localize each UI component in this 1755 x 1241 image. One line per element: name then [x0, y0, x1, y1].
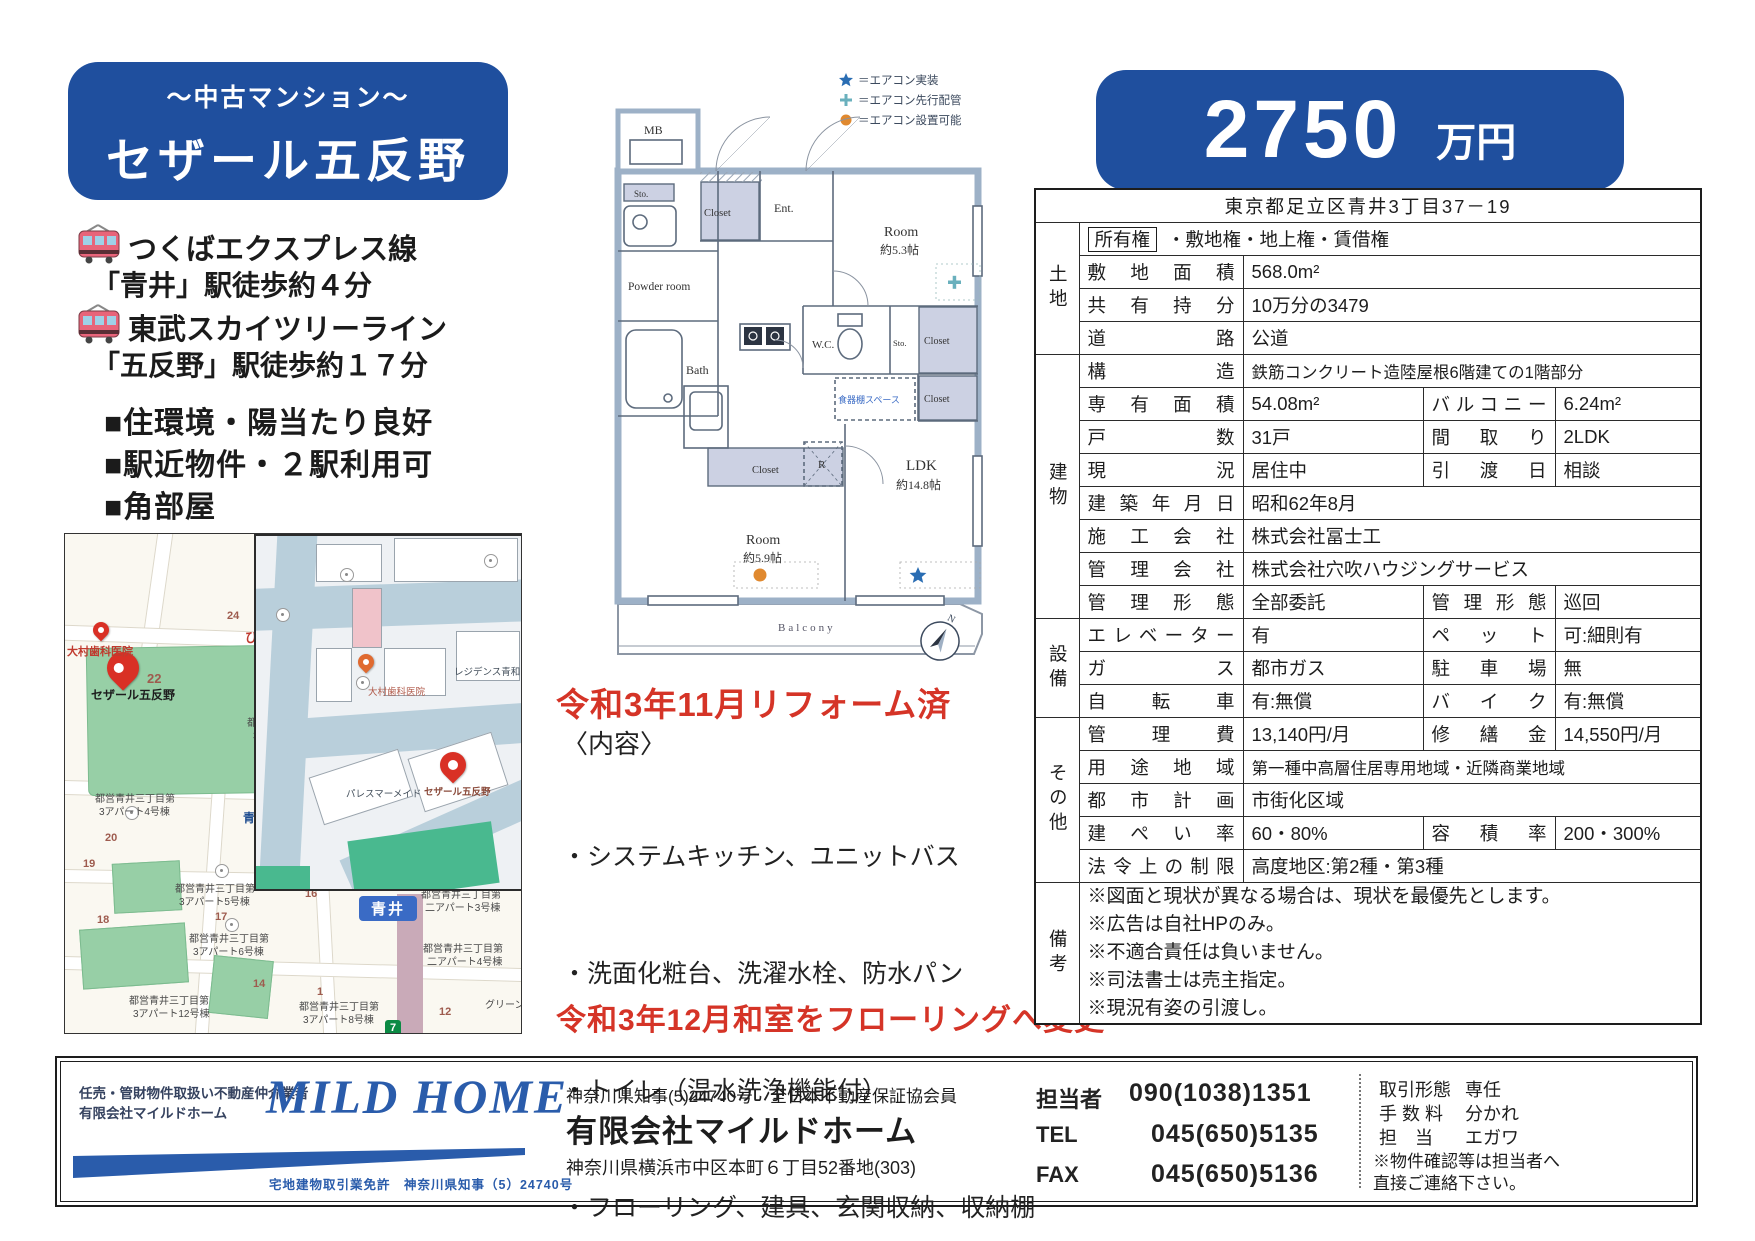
map-label: 22 [147, 672, 161, 686]
label-wc: W.C. [812, 339, 834, 351]
row-label: バイク [1423, 685, 1555, 718]
row-label: 引渡日 [1423, 454, 1555, 487]
map-label: 3アパート6号棟 [193, 947, 264, 958]
contact-person-phone: 090(1038)1351 [1129, 1079, 1312, 1108]
feature-3: ■角部屋 [104, 482, 216, 526]
row-value: 可:細則有 [1555, 619, 1701, 652]
map-label: 大村歯科医院 [67, 646, 133, 658]
label-entrance: Ent. [774, 201, 794, 215]
row-label: 構造 [1079, 355, 1243, 388]
note-line: ※図面と現状が異なる場合は、現状を最優先とします。 [1088, 883, 1693, 911]
footer: 任売・管財物件取扱い不動産仲介業者 有限会社マイルドホーム MILD HOME … [55, 1056, 1698, 1207]
map-label: 24 [227, 610, 239, 622]
deal-key: 取引形態 [1379, 1076, 1465, 1102]
map-label: 都営青井三丁目第 [189, 934, 269, 945]
section-other: その他 [1035, 718, 1079, 883]
row-label: 管理形態 [1423, 586, 1555, 619]
map-building [394, 538, 518, 582]
label-storage2: Sto. [893, 338, 906, 348]
row-label: 共有持分 [1079, 289, 1243, 322]
property-address: 東京都足立区青井3丁目37－19 [1035, 189, 1701, 223]
price-box: 2750 万円 [1096, 70, 1624, 190]
note-line: ※広告は自社HPのみ。 [1088, 911, 1693, 939]
map-label: 3アパート8号棟 [303, 1015, 374, 1026]
fax-number: 045(650)5136 [1151, 1160, 1319, 1189]
seven-eleven-icon: 7 [385, 1020, 401, 1034]
row-label: 専有面積 [1079, 388, 1243, 421]
map-building [316, 648, 352, 702]
label-cupboard-space: 食器棚スペース [838, 394, 900, 405]
access-walk-1: 「青井」駅徒歩約４分 [92, 264, 372, 304]
row-value: 2LDK [1555, 421, 1701, 454]
land-rights: 所有権・敷地権・地上権・賃借権 [1079, 223, 1701, 256]
row-value: 相談 [1555, 454, 1701, 487]
row-label: 建築年月日 [1079, 487, 1243, 520]
map-park [254, 866, 310, 891]
map-park [79, 922, 189, 989]
row-label: 現況 [1079, 454, 1243, 487]
section-building: 建物 [1035, 355, 1079, 619]
row-label: 戸数 [1079, 421, 1243, 454]
tel-label: TEL [1036, 1122, 1078, 1148]
row-value: 568.0m² [1243, 256, 1701, 289]
map-label: 1 [317, 986, 323, 998]
row-value: 有 [1243, 619, 1423, 652]
map-building-pink [352, 588, 382, 648]
map-label: 14 [253, 978, 265, 990]
contact-note-2: 直接ご連絡下さい。 [1373, 1172, 1526, 1195]
row-label: エレベーター [1079, 619, 1243, 652]
row-label: 間取り [1423, 421, 1555, 454]
label-balcony: Balcony [778, 622, 836, 634]
renovation-note: 令和3年12月和室をフローリングへ変更 [556, 995, 1105, 1039]
map-label: 17 [215, 911, 227, 923]
row-label: 敷地面積 [1079, 256, 1243, 289]
deal-key: 担 当 [1379, 1124, 1465, 1150]
map-label: 19 [83, 858, 95, 870]
map-label-property: セザール五反野 [91, 689, 175, 702]
row-label: 管理形態 [1079, 586, 1243, 619]
label-closet-k: Closet [924, 394, 950, 405]
row-value: 10万分の3479 [1243, 289, 1701, 322]
map-dot-marker [484, 554, 498, 568]
access-line-1: つくばエクスプレス線 [128, 226, 417, 268]
company-address: 神奈川県横浜市中区本町６丁目52番地(303) [566, 1154, 916, 1180]
company-logo: MILD HOME [266, 1074, 568, 1122]
map-label: 3アパート4号棟 [99, 807, 170, 818]
map-label: 20 [105, 832, 117, 844]
row-label: 建ぺい率 [1079, 817, 1243, 850]
note-line: ※司法書士は売主指定。 [1088, 967, 1693, 995]
agent-row: 担 当エガワ [1379, 1124, 1519, 1150]
row-label: 法令上の制限 [1079, 850, 1243, 883]
label-room2-size: 約5.9帖 [743, 550, 782, 565]
label-fridge: R [818, 459, 826, 471]
aircon-legend: ＝エアコン実装 ＝エアコン先行配管 ＝エアコン設置可能 [839, 73, 962, 127]
access-walk-2: 「五反野」駅徒歩約１７分 [92, 344, 428, 384]
deal-key: 手 数 料 [1379, 1100, 1465, 1126]
legend-label: ＝エアコン先行配管 [858, 93, 962, 107]
label-ldk-size: 約14.8帖 [896, 477, 941, 492]
section-notes: 備考 [1035, 883, 1079, 1025]
price-unit: 万円 [1436, 92, 1516, 168]
fax-label: FAX [1036, 1162, 1079, 1188]
map-station-aoi: 青井 [359, 896, 417, 921]
contact-note-1: ※物件確認等は担当者へ [1373, 1150, 1560, 1173]
company-name: 有限会社マイルドホーム [566, 1106, 917, 1151]
map-park [347, 821, 499, 891]
cross-icon [840, 94, 852, 106]
deal-type-row: 取引形態専任 [1379, 1076, 1501, 1102]
section-land: 土地 [1035, 223, 1079, 355]
feature-1: ■住環境・陽当たり良好 [104, 398, 433, 442]
map-dot-marker [276, 608, 290, 622]
label-bath: Bath [686, 363, 709, 377]
row-label: ペット [1423, 619, 1555, 652]
row-label: 都市計画 [1079, 784, 1243, 817]
property-name: セザール五反野 [68, 122, 508, 191]
label-room1: Room [884, 225, 918, 240]
neighborhood-map: 青井 文 7 大村歯科医院 ひろた歯 24 セザール五反野 都営青井三 3アパー… [64, 533, 522, 1034]
map-label: 3アパート5号棟 [179, 897, 250, 908]
row-label: 管理費 [1079, 718, 1243, 751]
row-label: 駐車場 [1423, 652, 1555, 685]
train-icon [76, 224, 122, 264]
row-value: 13,140円/月 [1243, 718, 1423, 751]
contact-person-label: 担当者 [1036, 1082, 1102, 1114]
deal-value: 専任 [1465, 1080, 1501, 1100]
row-label: 道路 [1079, 322, 1243, 355]
row-label: ガス [1079, 652, 1243, 685]
row-value: 有:無償 [1555, 685, 1701, 718]
section-facility: 設備 [1035, 619, 1079, 718]
row-value: 200・300% [1555, 817, 1701, 850]
row-value: 6.24m² [1555, 388, 1701, 421]
row-label: 自転車 [1079, 685, 1243, 718]
label-room2: Room [746, 533, 780, 548]
map-label: 都営青井三丁目第 [129, 996, 209, 1007]
row-label: 施工会社 [1079, 520, 1243, 553]
map-label: グリーン [485, 1000, 522, 1011]
property-title-box: 〜中古マンション〜 セザール五反野 [68, 62, 508, 200]
right-others: ・敷地権・地上権・賃借権 [1167, 229, 1389, 250]
dotted-divider [1359, 1074, 1361, 1188]
map-pin-dental [355, 651, 378, 674]
label-powder-room: Powder room [628, 281, 690, 293]
map-label: 都営青井三丁目第 [175, 884, 255, 895]
license-line: 宅地建物取引業免許 神奈川県知事（5）24740号 [269, 1174, 573, 1193]
row-value: 無 [1555, 652, 1701, 685]
footer-inner: 任売・管財物件取扱い不動産仲介業者 有限会社マイルドホーム MILD HOME … [60, 1061, 1693, 1202]
notes: ※図面と現状が異なる場合は、現状を最優先とします。 ※広告は自社HPのみ。 ※不… [1079, 883, 1701, 1025]
map-label-property: セザール五反野 [424, 784, 491, 798]
renovation-heading: 令和3年11月リフォーム済 [556, 678, 951, 726]
property-category: 〜中古マンション〜 [68, 62, 508, 114]
map-label: 都営青井三丁目第 [421, 890, 501, 901]
deal-value: 分かれ [1465, 1104, 1519, 1124]
map-street [254, 579, 522, 631]
renovation-subheading: 〈内容〉 [562, 724, 666, 761]
row-value: 巡回 [1555, 586, 1701, 619]
label-ldk: LDK [906, 458, 937, 474]
legend-label: ＝エアコン実装 [858, 73, 939, 87]
train-icon [76, 304, 122, 344]
agency-name-small: 有限会社マイルドホーム [79, 1104, 227, 1123]
registration-line: 神奈川県知事(5)24740号 全日本不動産保証協会員 [566, 1082, 957, 1107]
map-dot-marker [215, 864, 229, 878]
map-label: パレスマーメイド [346, 786, 421, 800]
map-label: 12 [439, 1006, 451, 1018]
map-dot-marker [340, 568, 354, 582]
row-value: 60・80% [1243, 817, 1423, 850]
price-amount: 2750 [1204, 89, 1402, 171]
map-label: レジデンス青和 [454, 664, 520, 678]
row-value: 市街化区域 [1243, 784, 1701, 817]
map-label: 3アパート12号棟 [133, 1009, 210, 1020]
row-value: 高度地区:第2種・第3種 [1243, 850, 1701, 883]
row-value: 株式会社冨士工 [1243, 520, 1701, 553]
row-value: 公道 [1243, 322, 1701, 355]
fee-row: 手 数 料分かれ [1379, 1100, 1519, 1126]
map-label: 都営青井三丁目第 [95, 794, 175, 805]
row-value: 全部委託 [1243, 586, 1423, 619]
label-storage: Sto. [634, 189, 648, 199]
row-value: 14,550円/月 [1555, 718, 1701, 751]
map-label: 都営青井三丁目第 [423, 944, 503, 955]
legend-label: ＝エアコン設置可能 [858, 113, 962, 127]
row-label: 管理会社 [1079, 553, 1243, 586]
deal-value: エガワ [1465, 1128, 1519, 1148]
tel-number: 045(650)5135 [1151, 1120, 1319, 1149]
flyer-page: 〜中古マンション〜 セザール五反野 つくばエクスプレス線 「青井」駅徒歩約４分 … [0, 0, 1755, 1241]
row-label: 容積率 [1423, 817, 1555, 850]
label-closet-r2: Closet [752, 465, 779, 476]
map-label: 大村歯科医院 [368, 684, 425, 698]
map-label: 都営青井三丁目第 [299, 1002, 379, 1013]
row-value: 第一種中高層住居専用地域・近隣商業地域 [1243, 751, 1701, 784]
map-label: 二アパート4号棟 [427, 957, 502, 968]
feature-2: ■駅近物件・２駅利用可 [104, 440, 433, 484]
row-value: 都市ガス [1243, 652, 1423, 685]
label-closet: Closet [704, 208, 731, 219]
label-room1-size: 約5.3帖 [880, 242, 919, 257]
right-ownership: 所有権 [1088, 227, 1158, 252]
note-line: ※現況有姿の引渡し。 [1088, 995, 1693, 1023]
row-label: 修繕金 [1423, 718, 1555, 751]
map-park [112, 860, 183, 913]
label-mb: MB [644, 123, 663, 137]
row-value: 鉄筋コンクリート造陸屋根6階建ての1階部分 [1243, 355, 1701, 388]
floor-plan: ＝エアコン実装 ＝エアコン先行配管 ＝エアコン設置可能 [588, 56, 1008, 674]
row-value: 54.08m² [1243, 388, 1423, 421]
row-value: 株式会社穴吹ハウジングサービス [1243, 553, 1701, 586]
spec-table: 東京都足立区青井3丁目37－19 土地 所有権・敷地権・地上権・賃借権 敷地面積… [1034, 188, 1702, 1025]
row-label: 用途地域 [1079, 751, 1243, 784]
map-label: 二アパート3号棟 [425, 903, 500, 914]
row-value: 31戸 [1243, 421, 1423, 454]
label-closet-wc: Closet [924, 336, 950, 347]
row-value: 昭和62年8月 [1243, 487, 1701, 520]
note-line: ※不適合責任は負いません。 [1088, 939, 1693, 967]
detail-map-inset: レジデンス青和 大村歯科医院 パレスマーメイド セザール五反野 [254, 534, 522, 891]
row-value: 有:無償 [1243, 685, 1423, 718]
map-label: 18 [97, 914, 109, 926]
row-value: 居住中 [1243, 454, 1423, 487]
access-line-2: 東武スカイツリーライン [128, 306, 447, 348]
row-label: バルコニー [1423, 388, 1555, 421]
star-icon [839, 73, 853, 86]
